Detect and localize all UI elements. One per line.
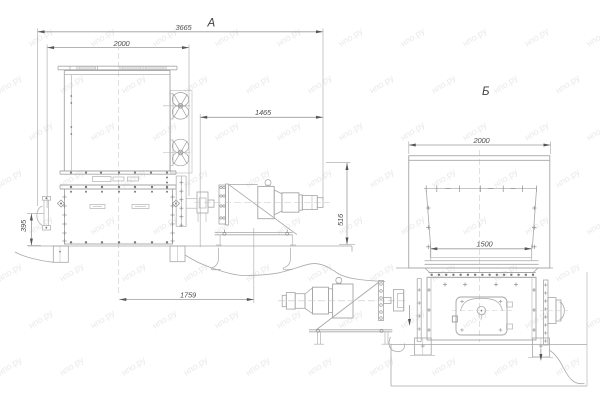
svg-text:1500: 1500 — [477, 239, 494, 248]
svg-text:1465: 1465 — [255, 108, 272, 117]
svg-text:Б: Б — [482, 86, 490, 98]
svg-text:3665: 3665 — [176, 23, 193, 32]
svg-text:2000: 2000 — [473, 136, 491, 145]
svg-text:516: 516 — [336, 213, 345, 226]
svg-text:1759: 1759 — [180, 290, 197, 299]
svg-text:2000: 2000 — [113, 39, 131, 48]
svg-text:395: 395 — [19, 219, 28, 232]
svg-text:А: А — [207, 18, 216, 30]
